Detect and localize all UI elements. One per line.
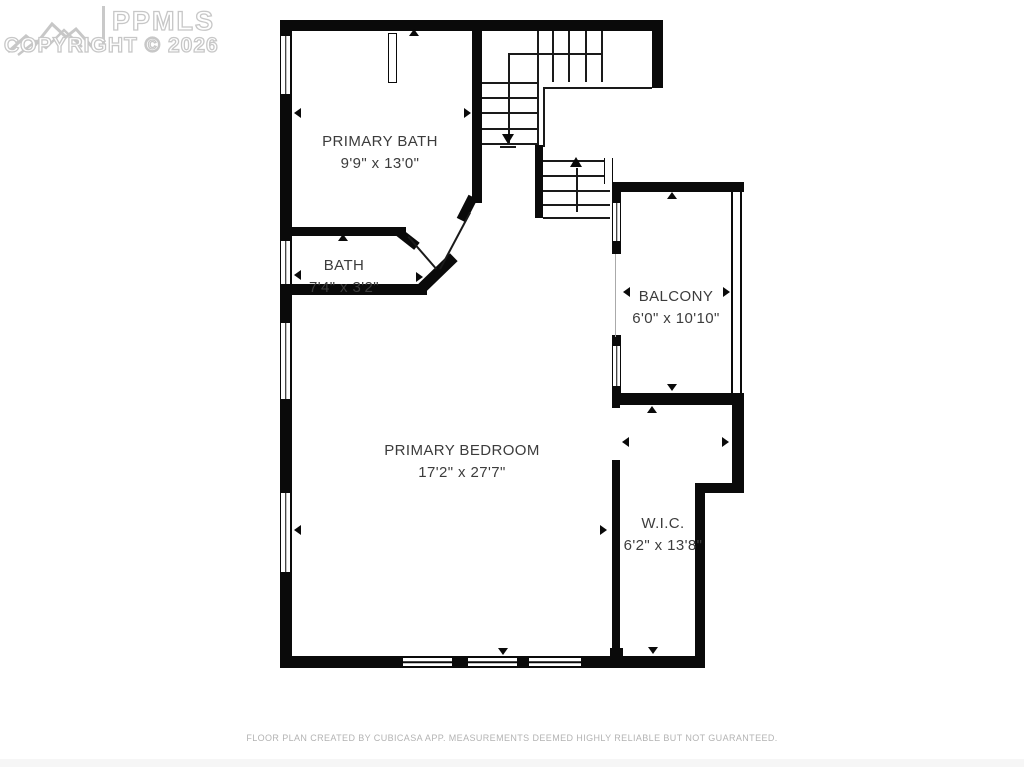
stairwell-edge xyxy=(543,87,545,147)
marker-arrow-icon xyxy=(722,437,729,447)
wall-top xyxy=(280,20,663,31)
room-label-balcony: BALCONY 6'0" x 10'10" xyxy=(556,286,796,330)
stairs-down-arrow-icon xyxy=(502,134,514,144)
stair-tread xyxy=(482,112,538,114)
window xyxy=(528,657,582,667)
wall-wic-jog xyxy=(695,483,744,493)
room-name: BATH xyxy=(224,255,464,277)
stair-tread xyxy=(601,31,603,82)
wall-divider-foot xyxy=(610,648,623,668)
stairwell-edge xyxy=(543,87,652,89)
stair-flight-bottom-edge xyxy=(543,217,610,219)
stair-tread xyxy=(482,128,538,130)
room-label-primary-bedroom: PRIMARY BEDROOM 17'2" x 27'7" xyxy=(342,440,582,484)
stair-up-arrow-shaft xyxy=(576,168,578,212)
stair-inner-line xyxy=(508,53,602,55)
wall-balcony-bottom xyxy=(612,393,744,405)
marker-arrow-icon xyxy=(498,648,508,655)
disclaimer-text: FLOOR PLAN CREATED BY CUBICASA APP. MEAS… xyxy=(0,733,1024,743)
room-dimensions: 9'9" x 13'0" xyxy=(260,153,500,175)
window xyxy=(467,657,518,667)
wic-door-opening xyxy=(611,408,621,460)
floor-plan: PPMLS COPYRIGHT © 2026 xyxy=(0,0,1024,767)
watermark-copyright: COPYRIGHT © 2026 xyxy=(4,34,219,58)
window xyxy=(280,322,291,400)
wall-wic-right-upper xyxy=(732,393,744,493)
wall-balcony-top xyxy=(612,182,744,192)
room-name: PRIMARY BEDROOM xyxy=(342,440,582,462)
stair-tread xyxy=(482,97,538,99)
stair-tread xyxy=(552,31,554,82)
bath-partition xyxy=(388,33,397,83)
room-name: W.I.C. xyxy=(543,513,783,535)
window xyxy=(280,35,291,95)
stair-tread xyxy=(585,31,587,82)
marker-arrow-icon xyxy=(622,437,629,447)
marker-arrow-icon xyxy=(648,647,658,654)
marker-arrow-icon xyxy=(647,406,657,413)
room-label-bath: BATH 7'4" x 3'2" xyxy=(224,255,464,299)
window xyxy=(402,657,453,667)
stairs-up-arrow-icon xyxy=(570,157,582,167)
stair-down-arrow-tick xyxy=(500,146,516,148)
balcony-window xyxy=(612,202,621,242)
marker-arrow-icon xyxy=(294,525,301,535)
marker-arrow-icon xyxy=(338,234,348,241)
stair-inner-line xyxy=(508,53,510,145)
room-label-primary-bath: PRIMARY BATH 9'9" x 13'0" xyxy=(260,131,500,175)
wall-stairwell-right xyxy=(652,20,663,88)
stair-flight-right-edge xyxy=(604,158,613,184)
window xyxy=(280,492,291,573)
marker-arrow-icon xyxy=(667,192,677,199)
watermark-brand: PPMLS xyxy=(112,6,215,37)
room-dimensions: 17'2" x 27'7" xyxy=(342,462,582,484)
marker-arrow-icon xyxy=(409,29,419,36)
room-name: BALCONY xyxy=(556,286,796,308)
marker-arrow-icon xyxy=(294,108,301,118)
bottom-strip xyxy=(0,759,1024,767)
wall-bath-right xyxy=(472,31,482,203)
wall-stair-flight-left xyxy=(535,145,543,218)
balcony-window xyxy=(612,345,621,387)
room-dimensions: 6'0" x 10'10" xyxy=(556,308,796,330)
room-label-wic: W.I.C. 6'2" x 13'8" xyxy=(543,513,783,557)
room-dimensions: 7'4" x 3'2" xyxy=(224,277,464,299)
room-dimensions: 6'2" x 13'8" xyxy=(543,535,783,557)
stair-tread xyxy=(482,82,538,84)
marker-arrow-icon xyxy=(667,384,677,391)
room-name: PRIMARY BATH xyxy=(260,131,500,153)
marker-arrow-icon xyxy=(464,108,471,118)
stair-tread xyxy=(568,31,570,82)
